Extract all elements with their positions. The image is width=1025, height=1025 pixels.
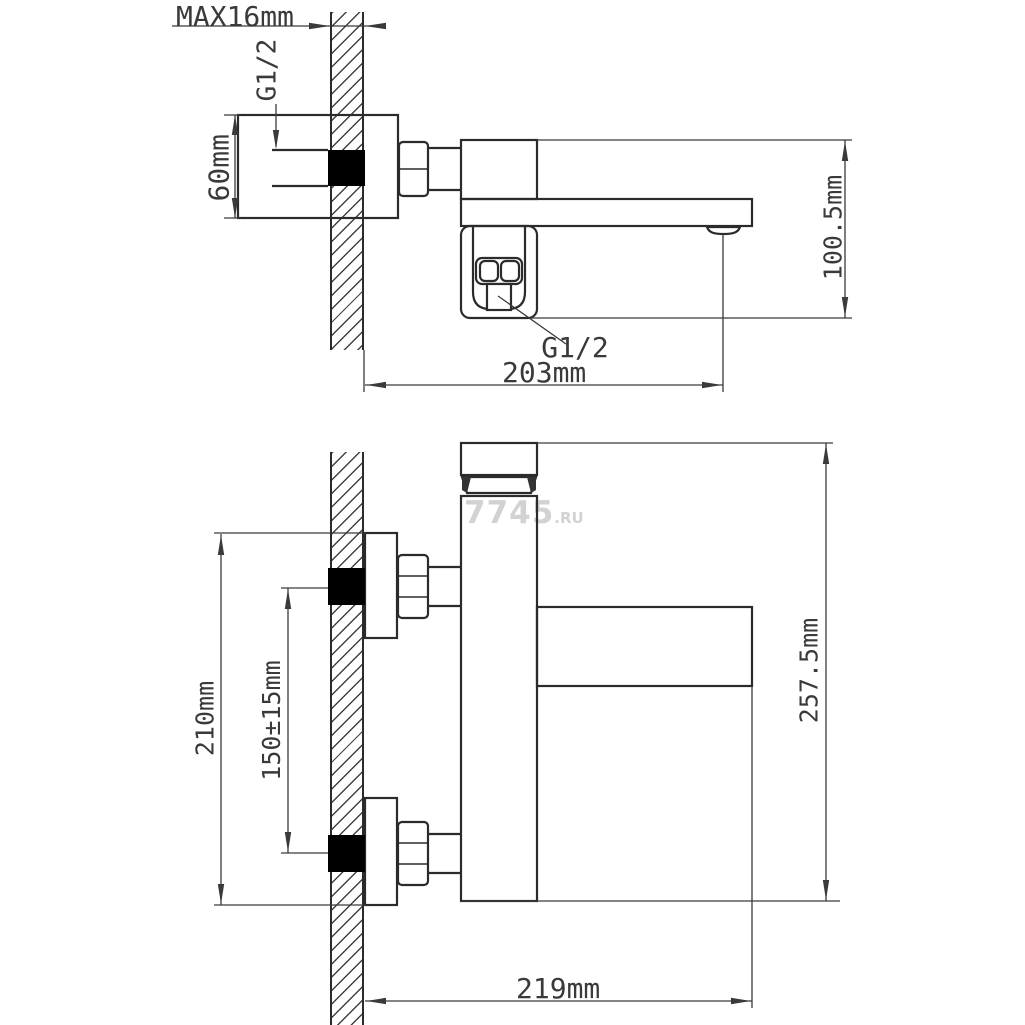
hex-nut-upper: [398, 555, 428, 618]
spout-front: [537, 607, 752, 686]
escutcheon-top: [365, 533, 397, 638]
front-view-object-lines: [365, 443, 752, 905]
dim-label-overall-height-top-view: 100.5mm: [821, 175, 846, 281]
outlet-port-right: [501, 261, 519, 281]
front-view-dimension-lines: [214, 443, 840, 1008]
aerator-dome: [707, 227, 740, 234]
faucet-body-side: [461, 140, 537, 199]
front-view-black-fills: [328, 568, 365, 872]
wall-pipe-pass-upper: [328, 568, 365, 605]
dim-label-hole-spacing: 150±15mm: [259, 660, 284, 781]
dim-label-body-height: 60mm: [206, 135, 234, 202]
dim-label-plate-height: 210mm: [193, 681, 218, 757]
dim-label-overall-height-front-view: 257.5mm: [797, 618, 822, 724]
front-view-arrowheads: [218, 444, 829, 1004]
top-view-object-lines: [238, 115, 752, 318]
faucet-body-front: [461, 496, 537, 901]
escutcheon-bottom: [365, 798, 397, 905]
technical-drawing-canvas: 7745.RU: [0, 0, 1025, 1025]
mounting-body-outline: [238, 115, 398, 218]
hex-nut-lower: [398, 822, 428, 885]
dim-label-spout-reach-front-view: 219mm: [516, 975, 600, 1003]
dim-label-spout-reach-top-view: 203mm: [502, 359, 586, 387]
spout-side: [461, 199, 752, 226]
wall-pipe-pass-lower: [328, 835, 365, 872]
handle-collar: [462, 477, 536, 493]
top-view-arrowheads: [232, 23, 848, 388]
outlet-port-left: [480, 261, 498, 281]
dim-label-max-wall-thickness: MAX16mm: [176, 3, 294, 31]
dim-label-inlet-thread: G1/2: [255, 39, 281, 102]
wall-pipe-pass-top-view: [328, 150, 365, 186]
handle-cap: [461, 443, 537, 475]
top-view-black-fills: [328, 150, 365, 186]
technical-drawing-svg: [0, 0, 1025, 1025]
